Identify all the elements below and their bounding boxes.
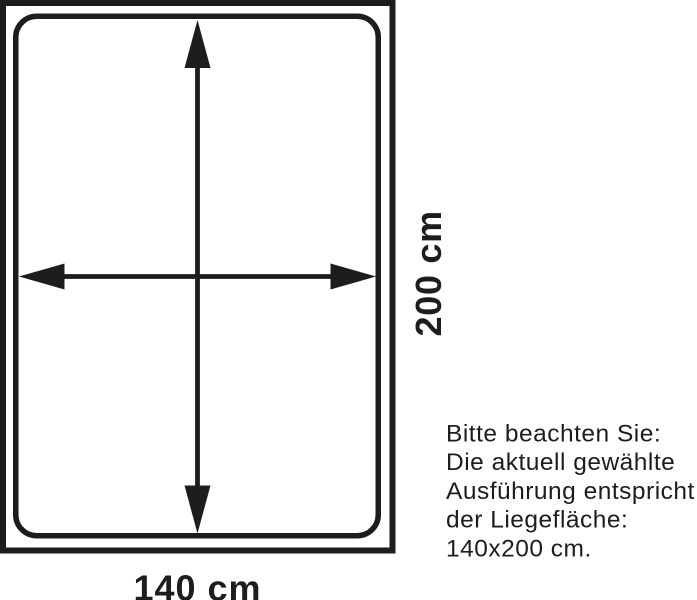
svg-text:200 cm: 200 cm	[408, 210, 449, 336]
svg-text:140 cm: 140 cm	[133, 567, 261, 600]
svg-text:Die aktuell gewählte: Die aktuell gewählte	[446, 449, 675, 476]
svg-text:Ausführung entspricht: Ausführung entspricht	[446, 478, 695, 505]
svg-text:der Liegefläche:: der Liegefläche:	[446, 507, 628, 534]
svg-text:Bitte beachten Sie:: Bitte beachten Sie:	[446, 421, 661, 448]
svg-text:140x200 cm.: 140x200 cm.	[446, 535, 592, 562]
